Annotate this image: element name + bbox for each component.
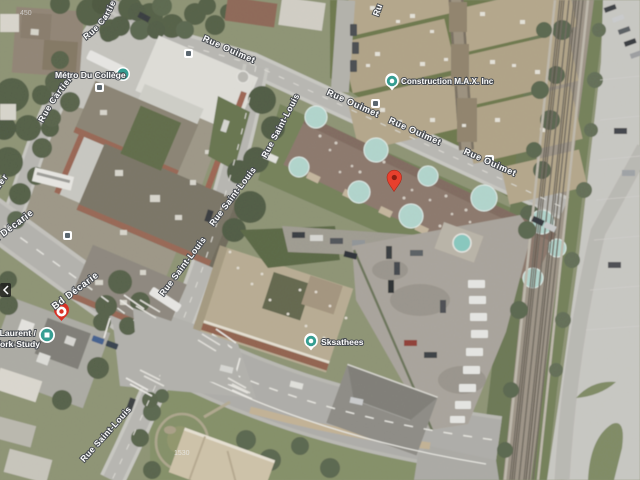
svg-text:Métro Du Collège: Métro Du Collège: [55, 70, 126, 80]
svg-text:450: 450: [20, 10, 32, 17]
svg-text:Construction M.A.X. Inc: Construction M.A.X. Inc: [401, 77, 494, 86]
svg-text:s-Laurent /: s-Laurent /: [0, 328, 37, 338]
svg-text:1530: 1530: [174, 450, 190, 457]
svg-text:Sksathees: Sksathees: [321, 337, 364, 347]
svg-text:Work-Study: Work-Study: [0, 339, 40, 349]
